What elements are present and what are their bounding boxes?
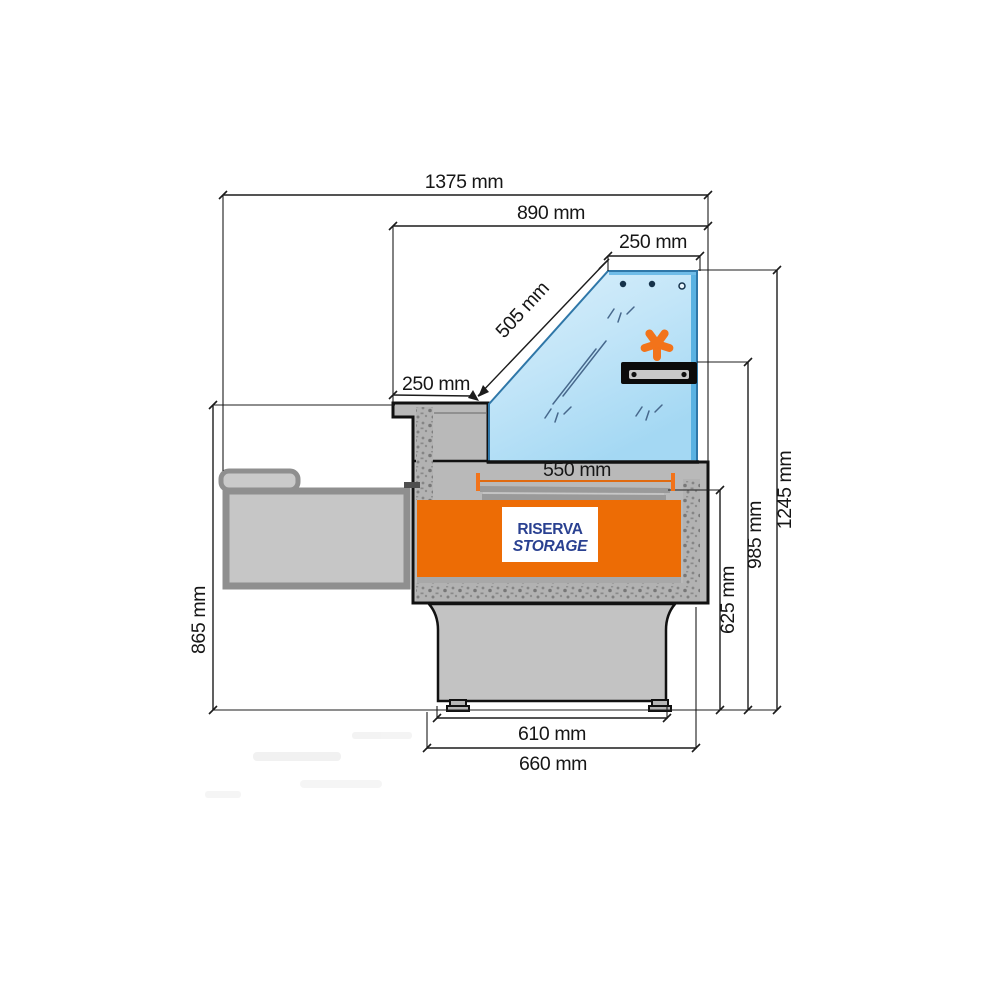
plinth bbox=[429, 604, 675, 701]
machine-unit bbox=[221, 471, 407, 586]
dim-glass-top-width-label: 250 mm bbox=[619, 231, 687, 253]
dim-deck-width-label: 550 mm bbox=[543, 459, 611, 481]
machine-unit-body bbox=[226, 491, 407, 586]
storage-floor-line bbox=[417, 577, 681, 583]
foot-right bbox=[649, 700, 671, 711]
product-dimension-diagram: RISERVA STORAGE bbox=[0, 0, 1000, 1000]
light-bar bbox=[621, 362, 697, 384]
dim-base-width-label: 660 mm bbox=[519, 753, 587, 775]
machine-unit-lip bbox=[221, 471, 298, 490]
dim-feet-spacing-label: 610 mm bbox=[518, 723, 586, 745]
storage-label-line1: RISERVA bbox=[517, 521, 582, 538]
storage-label-line2: STORAGE bbox=[513, 538, 588, 555]
dim-counter-height-label: 865 mm bbox=[188, 586, 210, 654]
insulation-bottom bbox=[416, 583, 700, 601]
dim-total-height-label: 1245 mm bbox=[774, 451, 796, 530]
dim-upper-width-label: 890 mm bbox=[517, 202, 585, 224]
insulation-right bbox=[683, 479, 700, 589]
storage-label: RISERVA STORAGE bbox=[502, 507, 598, 562]
dim-rear-depth-label: 250 mm bbox=[402, 373, 470, 395]
diagram-canvas: RISERVA STORAGE bbox=[0, 0, 1000, 1000]
dim-shelf-height-label: 625 mm bbox=[717, 566, 739, 634]
dim-light-height-label: 985 mm bbox=[744, 501, 766, 569]
pipe-stub bbox=[404, 482, 420, 488]
dim-total-width-label: 1375 mm bbox=[425, 171, 504, 193]
foot-left bbox=[447, 700, 469, 711]
